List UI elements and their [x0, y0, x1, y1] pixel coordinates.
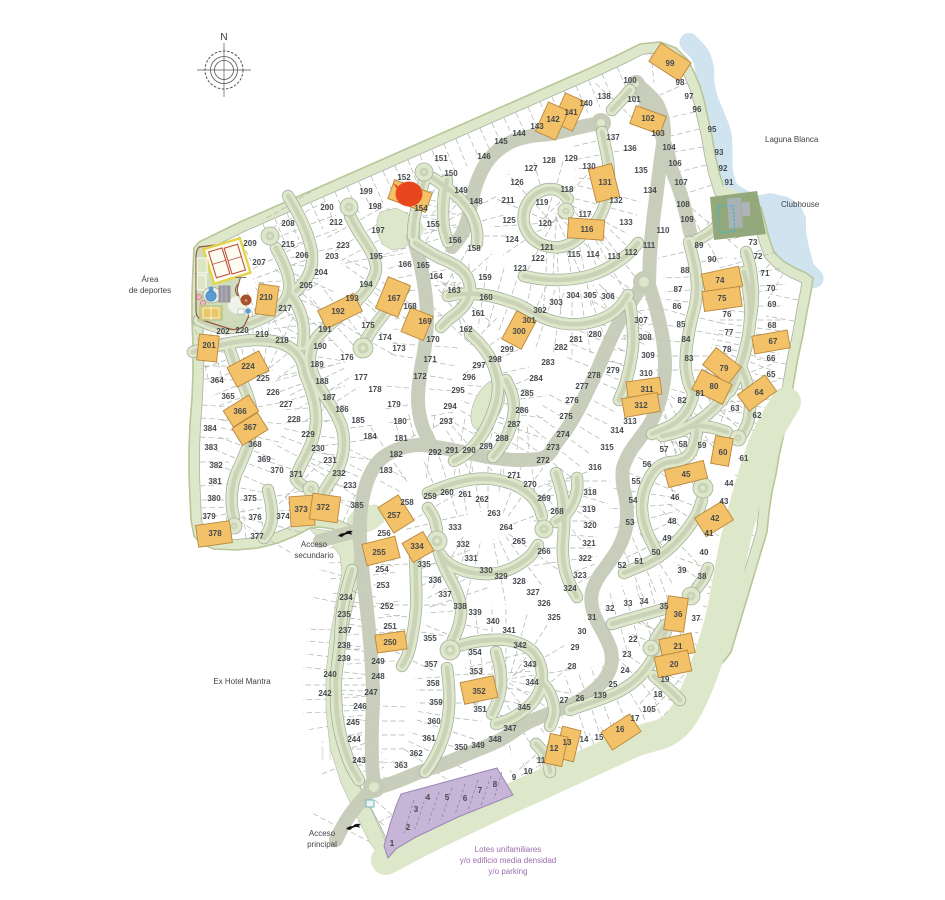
svg-text:y/o parking: y/o parking [488, 867, 527, 876]
svg-text:223: 223 [336, 241, 350, 250]
svg-text:104: 104 [662, 143, 676, 152]
svg-text:252: 252 [380, 602, 394, 611]
svg-text:118: 118 [561, 185, 574, 194]
svg-text:16: 16 [616, 725, 625, 734]
svg-text:231: 231 [323, 456, 337, 465]
svg-text:33: 33 [624, 599, 633, 608]
svg-text:141: 141 [564, 108, 578, 117]
svg-text:30: 30 [578, 627, 587, 636]
svg-text:173: 173 [392, 344, 406, 353]
svg-text:306: 306 [601, 292, 615, 301]
svg-text:142: 142 [546, 115, 560, 124]
svg-text:171: 171 [423, 355, 437, 364]
svg-text:126: 126 [510, 178, 524, 187]
svg-text:139: 139 [593, 691, 607, 700]
svg-text:159: 159 [478, 273, 492, 282]
svg-text:150: 150 [444, 169, 458, 178]
svg-text:138: 138 [597, 92, 611, 101]
svg-text:64: 64 [755, 388, 764, 397]
svg-text:70: 70 [767, 284, 776, 293]
svg-text:332: 332 [456, 540, 470, 549]
svg-text:▬▬▬: ▬▬▬ [236, 275, 247, 279]
svg-text:93: 93 [715, 148, 724, 157]
svg-text:239: 239 [337, 654, 351, 663]
svg-text:37: 37 [692, 614, 701, 623]
svg-text:273: 273 [546, 443, 560, 452]
svg-text:108: 108 [676, 200, 690, 209]
svg-text:74: 74 [716, 276, 725, 285]
svg-text:67: 67 [769, 337, 778, 346]
svg-text:280: 280 [588, 330, 602, 339]
svg-text:278: 278 [587, 371, 601, 380]
svg-text:68: 68 [768, 321, 777, 330]
svg-text:Área: Área [142, 275, 159, 284]
svg-text:172: 172 [413, 372, 427, 381]
svg-text:290: 290 [462, 446, 476, 455]
svg-text:316: 316 [588, 463, 602, 472]
svg-text:61: 61 [740, 454, 749, 463]
svg-text:340: 340 [486, 617, 500, 626]
svg-text:13: 13 [563, 738, 572, 747]
svg-text:324: 324 [563, 584, 577, 593]
svg-text:167: 167 [387, 294, 401, 303]
svg-text:359: 359 [429, 698, 443, 707]
svg-text:354: 354 [468, 648, 482, 657]
svg-text:352: 352 [472, 687, 486, 696]
svg-text:294: 294 [443, 402, 457, 411]
svg-text:373: 373 [294, 505, 308, 514]
svg-text:326: 326 [537, 599, 551, 608]
svg-text:266: 266 [537, 547, 551, 556]
svg-text:313: 313 [623, 417, 637, 426]
svg-text:31: 31 [588, 613, 597, 622]
svg-text:106: 106 [668, 159, 682, 168]
svg-text:200: 200 [320, 203, 334, 212]
svg-text:374: 374 [276, 512, 290, 521]
svg-text:301: 301 [522, 316, 536, 325]
svg-text:28: 28 [568, 662, 577, 671]
svg-text:Clubhouse: Clubhouse [781, 200, 820, 209]
svg-text:98: 98 [676, 78, 685, 87]
svg-text:212: 212 [329, 218, 343, 227]
svg-text:292: 292 [428, 448, 442, 457]
svg-text:295: 295 [451, 386, 465, 395]
svg-text:69: 69 [768, 300, 777, 309]
svg-text:176: 176 [340, 353, 354, 362]
svg-text:303: 303 [549, 298, 563, 307]
svg-text:261: 261 [458, 490, 472, 499]
svg-text:247: 247 [364, 688, 378, 697]
svg-text:230: 230 [311, 444, 325, 453]
svg-text:19: 19 [661, 675, 670, 684]
svg-text:5: 5 [445, 793, 450, 802]
svg-text:155: 155 [426, 220, 440, 229]
svg-text:358: 358 [426, 679, 440, 688]
svg-text:281: 281 [569, 335, 583, 344]
svg-text:238: 238 [337, 641, 351, 650]
svg-text:60: 60 [719, 448, 728, 457]
svg-text:276: 276 [565, 396, 579, 405]
svg-text:26: 26 [576, 694, 585, 703]
svg-text:383: 383 [204, 443, 218, 452]
svg-text:115: 115 [568, 250, 581, 259]
svg-text:163: 163 [447, 286, 461, 295]
svg-text:184: 184 [363, 432, 377, 441]
svg-text:105: 105 [642, 705, 656, 714]
svg-text:349: 349 [471, 741, 485, 750]
svg-text:321: 321 [582, 539, 596, 548]
svg-text:341: 341 [502, 626, 516, 635]
svg-text:307: 307 [634, 316, 648, 325]
svg-text:300: 300 [512, 327, 526, 336]
svg-text:51: 51 [635, 557, 644, 566]
svg-text:80: 80 [710, 382, 719, 391]
svg-text:49: 49 [663, 534, 672, 543]
svg-text:6: 6 [463, 794, 468, 803]
svg-text:100: 100 [623, 76, 637, 85]
svg-text:250: 250 [383, 638, 397, 647]
svg-text:87: 87 [674, 285, 683, 294]
svg-text:de deportes: de deportes [129, 286, 171, 295]
svg-text:369: 369 [257, 455, 271, 464]
svg-text:251: 251 [383, 622, 397, 631]
svg-text:380: 380 [207, 494, 221, 503]
svg-text:88: 88 [681, 266, 690, 275]
svg-text:25: 25 [609, 680, 618, 689]
svg-text:secundario: secundario [294, 551, 334, 560]
svg-text:75: 75 [718, 294, 727, 303]
svg-text:122: 122 [531, 254, 545, 263]
svg-text:203: 203 [325, 252, 339, 261]
svg-text:355: 355 [423, 634, 437, 643]
svg-text:59: 59 [698, 441, 707, 450]
svg-text:370: 370 [270, 466, 284, 475]
svg-text:78: 78 [723, 345, 732, 354]
svg-text:114: 114 [587, 250, 600, 259]
svg-text:84: 84 [682, 335, 691, 344]
svg-text:351: 351 [473, 705, 487, 714]
svg-text:14: 14 [580, 735, 589, 744]
svg-text:117: 117 [579, 210, 592, 219]
svg-text:145: 145 [494, 137, 508, 146]
svg-text:350: 350 [454, 743, 468, 752]
svg-text:257: 257 [387, 511, 401, 520]
svg-text:43: 43 [720, 497, 729, 506]
svg-text:3: 3 [414, 805, 419, 814]
svg-text:215: 215 [281, 240, 295, 249]
svg-text:46: 46 [671, 493, 680, 502]
svg-text:149: 149 [454, 186, 468, 195]
svg-text:193: 193 [345, 294, 359, 303]
svg-text:principal: principal [307, 840, 337, 849]
svg-text:9: 9 [512, 773, 517, 782]
svg-text:21: 21 [674, 642, 683, 651]
svg-text:328: 328 [512, 577, 526, 586]
svg-text:345: 345 [517, 703, 531, 712]
svg-text:348: 348 [488, 735, 502, 744]
svg-text:209: 209 [243, 239, 257, 248]
svg-text:310: 310 [639, 369, 653, 378]
svg-text:225: 225 [256, 374, 270, 383]
svg-text:4: 4 [426, 793, 431, 802]
svg-text:102: 102 [641, 114, 655, 123]
svg-text:325: 325 [547, 613, 561, 622]
svg-text:10: 10 [524, 767, 533, 776]
svg-text:63: 63 [731, 404, 740, 413]
svg-text:378: 378 [208, 529, 222, 538]
svg-text:32: 32 [606, 604, 615, 613]
svg-text:336: 336 [428, 576, 442, 585]
svg-text:334: 334 [410, 542, 424, 551]
svg-text:284: 284 [529, 374, 543, 383]
svg-text:220: 220 [235, 326, 249, 335]
svg-text:244: 244 [347, 735, 361, 744]
svg-text:245: 245 [346, 718, 360, 727]
svg-text:338: 338 [453, 602, 467, 611]
svg-text:36: 36 [674, 610, 683, 619]
svg-text:180: 180 [393, 417, 407, 426]
svg-text:271: 271 [507, 471, 521, 480]
svg-text:353: 353 [469, 667, 483, 676]
svg-text:55: 55 [632, 477, 641, 486]
svg-text:50: 50 [652, 548, 661, 557]
svg-text:258: 258 [400, 498, 414, 507]
svg-text:111: 111 [643, 241, 656, 250]
svg-text:368: 368 [248, 440, 262, 449]
svg-text:86: 86 [673, 302, 682, 311]
svg-text:8: 8 [493, 780, 498, 789]
svg-text:384: 384 [203, 424, 217, 433]
svg-text:166: 166 [398, 260, 412, 269]
svg-text:175: 175 [361, 321, 375, 330]
svg-text:160: 160 [479, 293, 493, 302]
svg-text:128: 128 [542, 156, 556, 165]
svg-text:65: 65 [767, 370, 776, 379]
svg-text:136: 136 [623, 144, 637, 153]
svg-text:199: 199 [359, 187, 373, 196]
svg-text:130: 130 [582, 162, 596, 171]
svg-text:140: 140 [579, 99, 593, 108]
svg-text:248: 248 [371, 672, 385, 681]
svg-text:54: 54 [629, 496, 638, 505]
svg-text:24: 24 [621, 666, 630, 675]
svg-text:311: 311 [641, 385, 654, 394]
svg-text:217: 217 [278, 304, 292, 313]
svg-text:123: 123 [513, 264, 527, 273]
svg-text:143: 143 [530, 122, 544, 131]
svg-text:205: 205 [299, 281, 313, 290]
svg-text:361: 361 [422, 734, 436, 743]
svg-text:322: 322 [578, 554, 592, 563]
svg-text:168: 168 [403, 302, 417, 311]
svg-text:92: 92 [719, 164, 728, 173]
svg-text:186: 186 [335, 405, 349, 414]
svg-text:235: 235 [337, 610, 351, 619]
svg-text:296: 296 [462, 373, 476, 382]
svg-text:269: 269 [537, 494, 551, 503]
svg-text:211: 211 [502, 196, 515, 205]
svg-text:263: 263 [487, 509, 501, 518]
svg-text:134: 134 [643, 186, 657, 195]
svg-text:335: 335 [417, 560, 431, 569]
svg-text:183: 183 [379, 466, 393, 475]
svg-text:85: 85 [677, 320, 686, 329]
svg-text:144: 144 [512, 129, 526, 138]
svg-text:110: 110 [657, 226, 670, 235]
svg-text:191: 191 [318, 325, 332, 334]
svg-text:277: 277 [575, 382, 589, 391]
svg-text:53: 53 [626, 518, 635, 527]
svg-text:264: 264 [499, 523, 513, 532]
svg-text:165: 165 [416, 261, 430, 270]
svg-text:148: 148 [469, 197, 483, 206]
svg-text:161: 161 [471, 309, 485, 318]
svg-text:178: 178 [368, 385, 382, 394]
svg-text:299: 299 [500, 345, 514, 354]
svg-text:1: 1 [390, 839, 395, 848]
svg-text:319: 319 [582, 505, 596, 514]
svg-text:146: 146 [477, 152, 491, 161]
svg-text:195: 195 [369, 252, 383, 261]
svg-text:260: 260 [440, 488, 454, 497]
svg-text:219: 219 [255, 330, 269, 339]
svg-text:133: 133 [619, 218, 633, 227]
svg-text:323: 323 [573, 571, 587, 580]
svg-text:262: 262 [475, 495, 489, 504]
svg-text:18: 18 [654, 690, 663, 699]
svg-text:41: 41 [705, 529, 714, 538]
svg-text:240: 240 [323, 670, 337, 679]
svg-text:7: 7 [478, 786, 483, 795]
svg-text:170: 170 [426, 335, 440, 344]
svg-text:96: 96 [693, 105, 702, 114]
svg-text:79: 79 [720, 364, 729, 373]
svg-text:228: 228 [287, 415, 301, 424]
svg-text:283: 283 [541, 358, 555, 367]
svg-text:293: 293 [439, 417, 453, 426]
svg-text:127: 127 [524, 164, 538, 173]
svg-text:333: 333 [448, 523, 462, 532]
svg-text:297: 297 [472, 361, 486, 370]
svg-text:72: 72 [754, 252, 763, 261]
svg-text:218: 218 [275, 336, 289, 345]
svg-text:190: 190 [313, 342, 327, 351]
svg-text:237: 237 [338, 626, 352, 635]
svg-text:125: 125 [502, 216, 516, 225]
svg-text:367: 367 [243, 423, 257, 432]
svg-text:305: 305 [583, 291, 597, 300]
svg-text:12: 12 [550, 744, 559, 753]
svg-text:52: 52 [618, 561, 627, 570]
svg-text:363: 363 [394, 761, 408, 770]
svg-text:40: 40 [700, 548, 709, 557]
svg-text:255: 255 [372, 548, 386, 557]
svg-text:A: A [244, 298, 247, 303]
svg-text:372: 372 [316, 503, 330, 512]
svg-text:71: 71 [761, 269, 770, 278]
svg-text:82: 82 [678, 396, 687, 405]
svg-text:229: 229 [301, 430, 315, 439]
svg-text:302: 302 [533, 306, 547, 315]
svg-text:343: 343 [523, 660, 537, 669]
svg-text:291: 291 [445, 446, 459, 455]
svg-text:357: 357 [424, 660, 438, 669]
svg-text:162: 162 [459, 325, 473, 334]
svg-text:272: 272 [536, 456, 550, 465]
svg-text:206: 206 [295, 251, 309, 260]
svg-text:185: 185 [351, 416, 365, 425]
svg-text:11: 11 [537, 756, 546, 765]
svg-text:103: 103 [651, 129, 665, 138]
svg-text:202: 202 [216, 327, 230, 336]
svg-text:Acceso: Acceso [309, 829, 336, 838]
svg-text:198: 198 [368, 202, 382, 211]
svg-text:181: 181 [394, 434, 408, 443]
svg-text:187: 187 [322, 393, 336, 402]
svg-text:2: 2 [406, 823, 411, 832]
svg-text:158: 158 [467, 244, 481, 253]
svg-text:371: 371 [289, 470, 303, 479]
svg-text:249: 249 [371, 657, 385, 666]
svg-text:320: 320 [583, 521, 597, 530]
svg-text:58: 58 [679, 440, 688, 449]
svg-text:97: 97 [685, 92, 694, 101]
svg-text:39: 39 [678, 566, 687, 575]
svg-text:286: 286 [515, 406, 529, 415]
svg-text:379: 379 [202, 512, 216, 521]
svg-text:66: 66 [767, 354, 776, 363]
svg-text:116: 116 [581, 225, 594, 234]
svg-text:232: 232 [332, 469, 346, 478]
svg-text:169: 169 [418, 317, 432, 326]
svg-text:233: 233 [343, 481, 357, 490]
svg-text:156: 156 [448, 236, 462, 245]
svg-text:45: 45 [682, 470, 691, 479]
svg-text:119: 119 [536, 198, 549, 207]
svg-text:376: 376 [248, 513, 262, 522]
svg-text:151: 151 [434, 154, 448, 163]
svg-text:375: 375 [243, 494, 257, 503]
svg-text:256: 256 [377, 529, 391, 538]
svg-text:265: 265 [512, 537, 526, 546]
svg-text:362: 362 [409, 749, 423, 758]
svg-text:154: 154 [414, 204, 428, 213]
svg-text:120: 120 [538, 219, 552, 228]
svg-text:95: 95 [708, 125, 717, 134]
svg-text:342: 342 [513, 641, 527, 650]
svg-text:309: 309 [641, 351, 655, 360]
svg-text:274: 274 [556, 430, 570, 439]
svg-text:242: 242 [318, 689, 332, 698]
svg-text:347: 347 [503, 724, 517, 733]
svg-text:Ex Hotel Mantra: Ex Hotel Mantra [213, 677, 271, 686]
svg-text:364: 364 [210, 376, 224, 385]
svg-text:23: 23 [623, 650, 632, 659]
svg-text:109: 109 [680, 215, 694, 224]
svg-text:204: 204 [314, 268, 328, 277]
svg-text:207: 207 [252, 258, 266, 267]
svg-text:381: 381 [208, 477, 222, 486]
svg-text:366: 366 [233, 407, 247, 416]
svg-text:Acceso: Acceso [301, 540, 328, 549]
svg-text:27: 27 [560, 696, 569, 705]
svg-text:29: 29 [571, 643, 580, 652]
svg-text:131: 131 [598, 178, 612, 187]
svg-text:282: 282 [554, 343, 568, 352]
svg-text:329: 329 [494, 572, 508, 581]
svg-text:107: 107 [674, 178, 688, 187]
svg-text:152: 152 [397, 173, 411, 182]
